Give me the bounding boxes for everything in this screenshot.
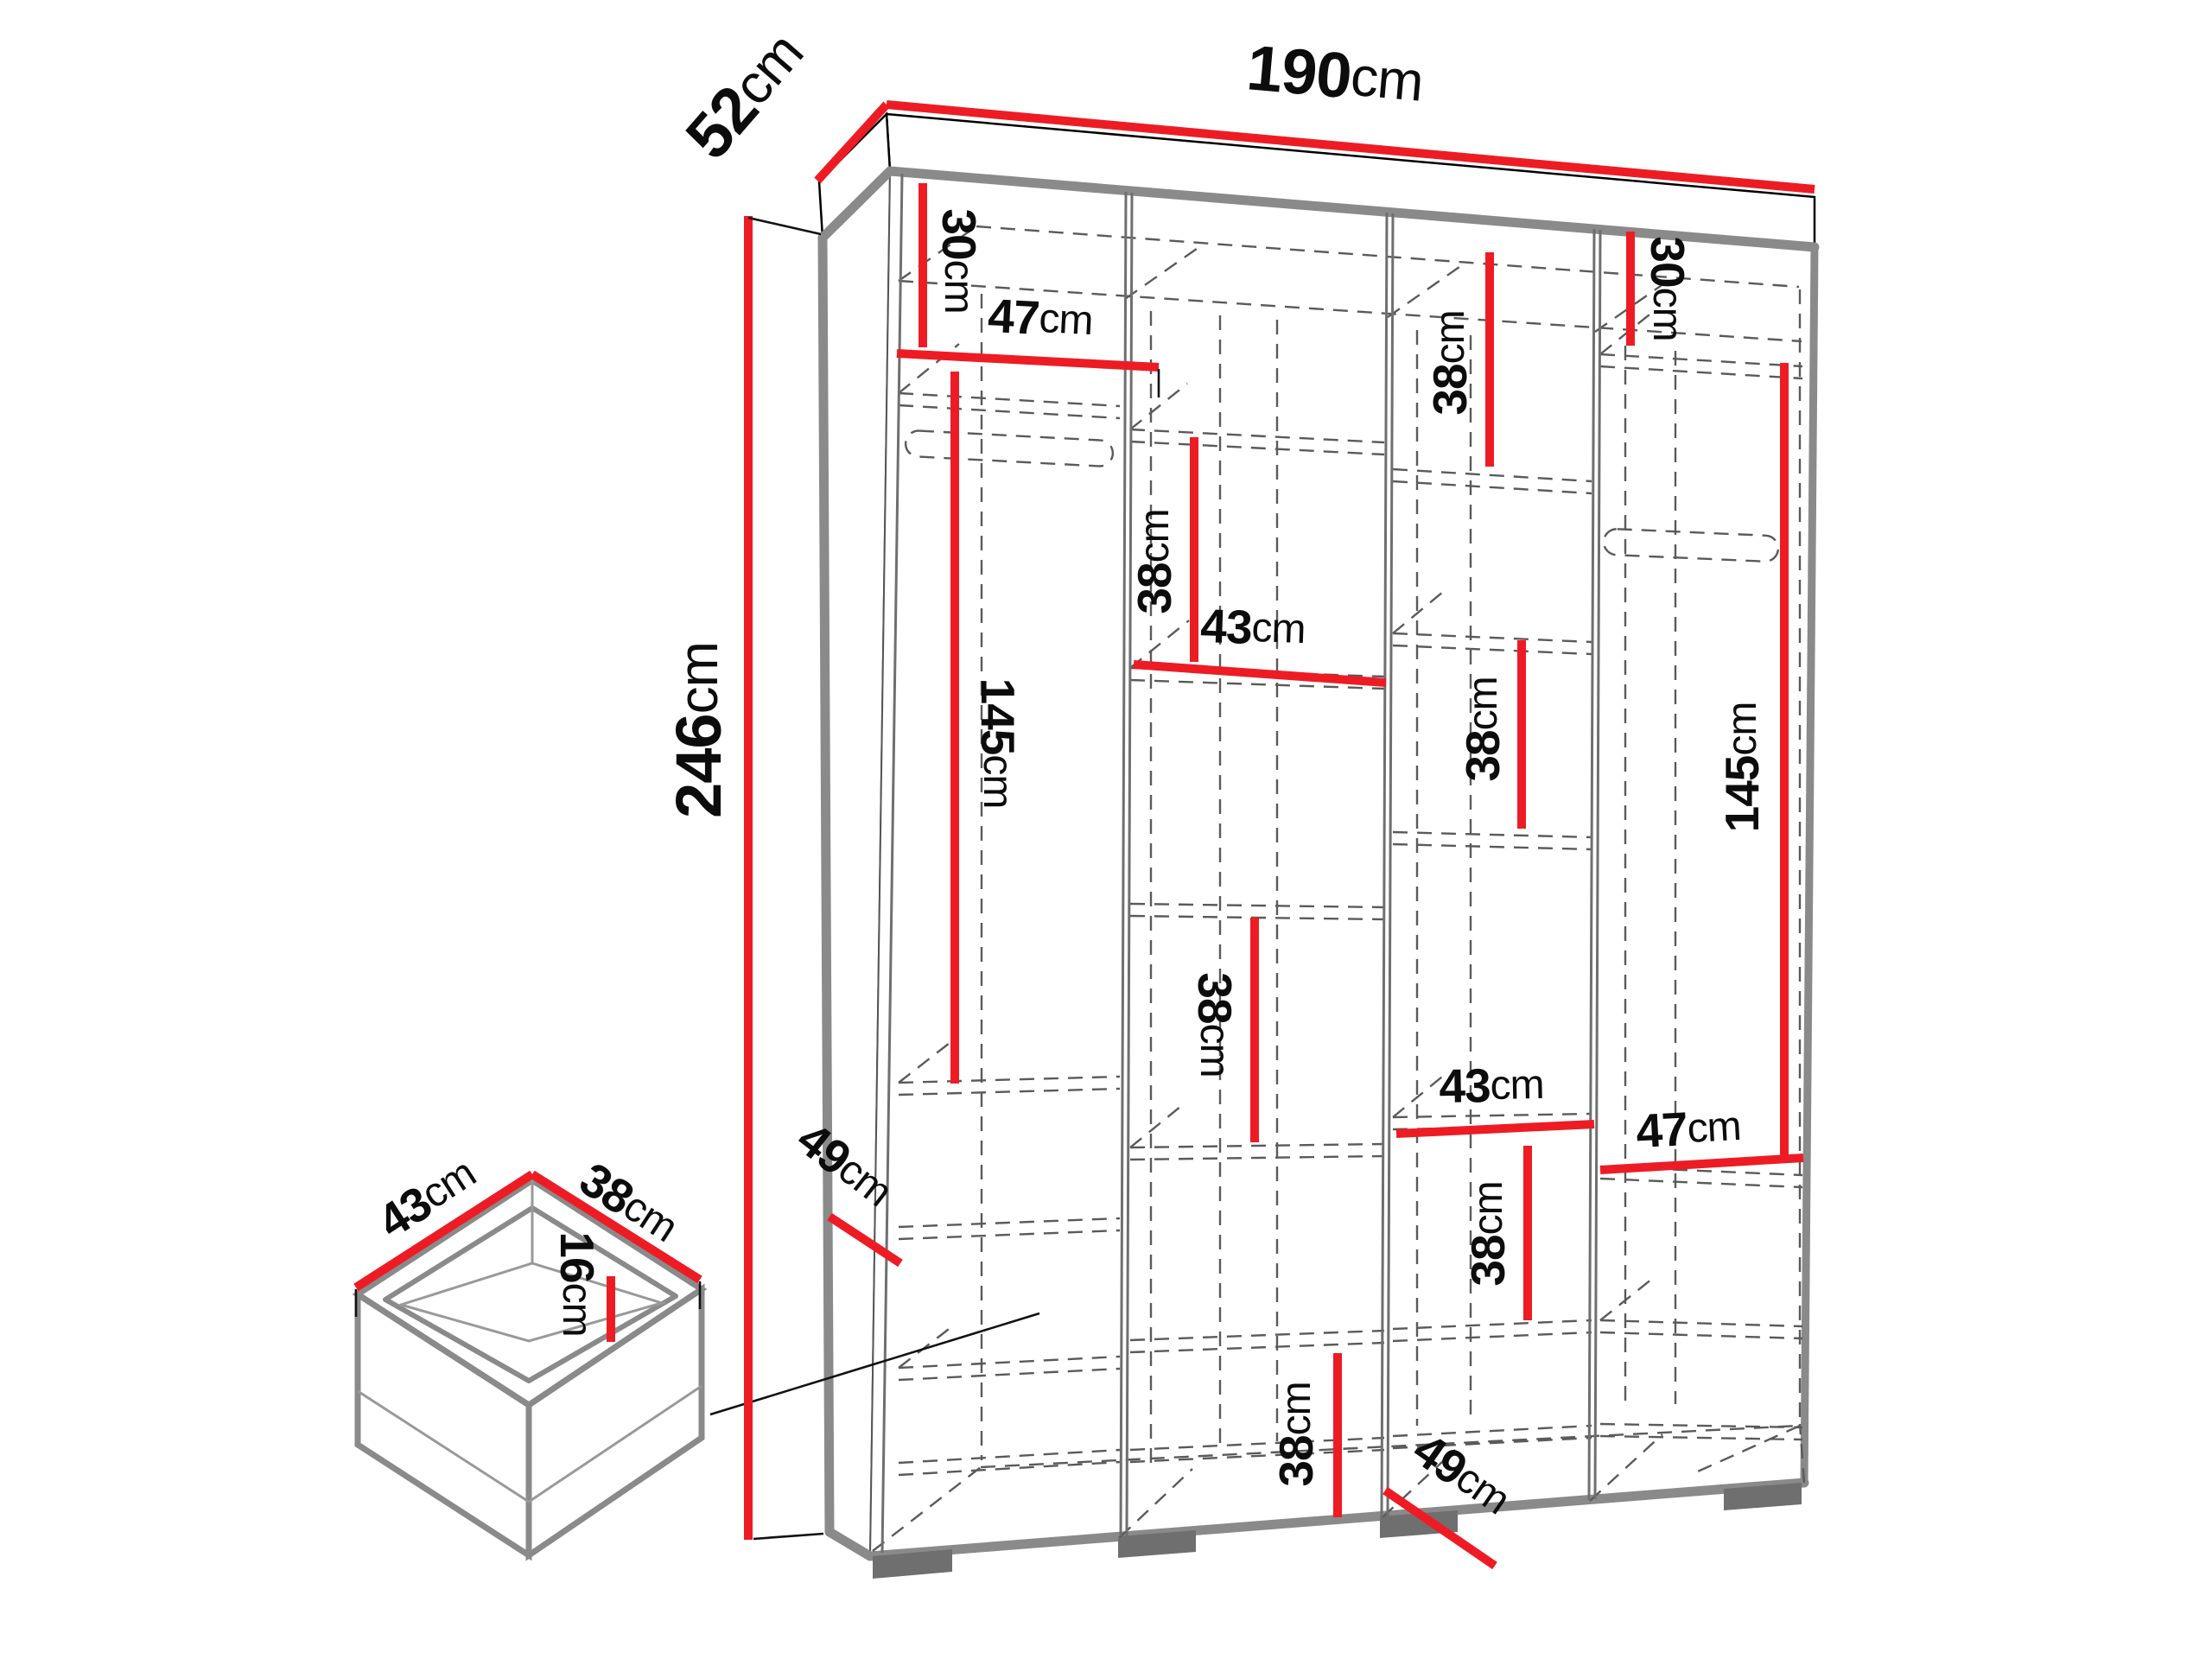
dim-unit: cm <box>667 642 729 714</box>
dim-value: 16 <box>550 1231 604 1282</box>
dim-value: 43 <box>1439 1058 1491 1113</box>
dim-value: 38 <box>1128 563 1181 613</box>
dim-label-c3-top: 38cm <box>1423 310 1477 415</box>
dim-unit: cm <box>1645 288 1691 341</box>
dim-label-c4-top: 30cm <box>1641 236 1694 340</box>
dim-label-c1-shelf-width: 47cm <box>987 289 1094 347</box>
dim-unit: cm <box>1427 310 1473 364</box>
dim-unit: cm <box>1686 1103 1742 1151</box>
dim-unit: cm <box>937 260 982 314</box>
dim-value: 145 <box>971 678 1025 755</box>
dim-value: 190 <box>1244 31 1354 111</box>
dim-value: 38 <box>1456 730 1510 781</box>
dim-label-height: 246cm <box>663 642 734 818</box>
dim-unit: cm <box>1490 1061 1544 1108</box>
dim-unit: cm <box>1192 1024 1238 1077</box>
dim-label-c4-hanging: 145cm <box>1715 702 1769 833</box>
dim-label-c2-shelf-width: 43cm <box>1199 599 1306 656</box>
dim-label-c2-bottom: 38cm <box>1269 1382 1323 1486</box>
dim-unit: cm <box>1038 295 1094 343</box>
dim-value: 47 <box>987 289 1040 345</box>
diagram-stage: 190cm 52cm 246cm 30cm 47cm 145cm 38cm <box>0 0 2212 1659</box>
dim-value: 246 <box>663 714 734 817</box>
dim-value: 38 <box>1269 1435 1323 1486</box>
dim-value: 43 <box>1199 599 1252 654</box>
dim-value: 30 <box>1641 236 1694 287</box>
dim-value: 38 <box>1188 972 1242 1023</box>
wardrobe-dimension-diagram: 190cm 52cm 246cm 30cm 47cm 145cm 38cm <box>0 0 2212 1659</box>
dim-value: 47 <box>1635 1102 1688 1158</box>
dim-label-c4-shelf-width: 47cm <box>1635 1099 1742 1158</box>
dim-unit: cm <box>1719 702 1765 756</box>
dim-unit: cm <box>1460 677 1506 730</box>
dim-unit: cm <box>1465 1181 1511 1235</box>
dim-label-width: 190cm <box>1244 31 1426 118</box>
front-face <box>870 171 1815 1556</box>
dim-value: 30 <box>932 208 986 259</box>
dim-unit: cm <box>1348 45 1425 113</box>
dim-unit: cm <box>555 1283 601 1337</box>
dim-value: 145 <box>1715 755 1769 832</box>
dim-label-c2-mid: 38cm <box>1188 972 1242 1077</box>
dim-unit: cm <box>1251 604 1306 652</box>
dim-value: 38 <box>1461 1235 1515 1286</box>
dim-unit: cm <box>1132 509 1178 563</box>
dim-label-c1-top: 30cm <box>932 208 986 313</box>
dim-unit: cm <box>1274 1382 1319 1435</box>
dim-unit: cm <box>976 754 1021 808</box>
dim-value: 38 <box>1423 364 1477 415</box>
dim-label-c3-lower: 38cm <box>1461 1181 1515 1286</box>
dim-label-c1-hanging: 145cm <box>971 678 1025 809</box>
dim-label-c3-shelf-width: 43cm <box>1439 1058 1544 1113</box>
dim-label-drawer-height: 16cm <box>550 1231 604 1336</box>
dim-height-ticks <box>748 218 823 1539</box>
dim-label-depth: 52cm <box>671 18 818 172</box>
dim-label-c2-upper: 38cm <box>1128 509 1181 613</box>
dim-label-c3-mid: 38cm <box>1456 677 1510 781</box>
